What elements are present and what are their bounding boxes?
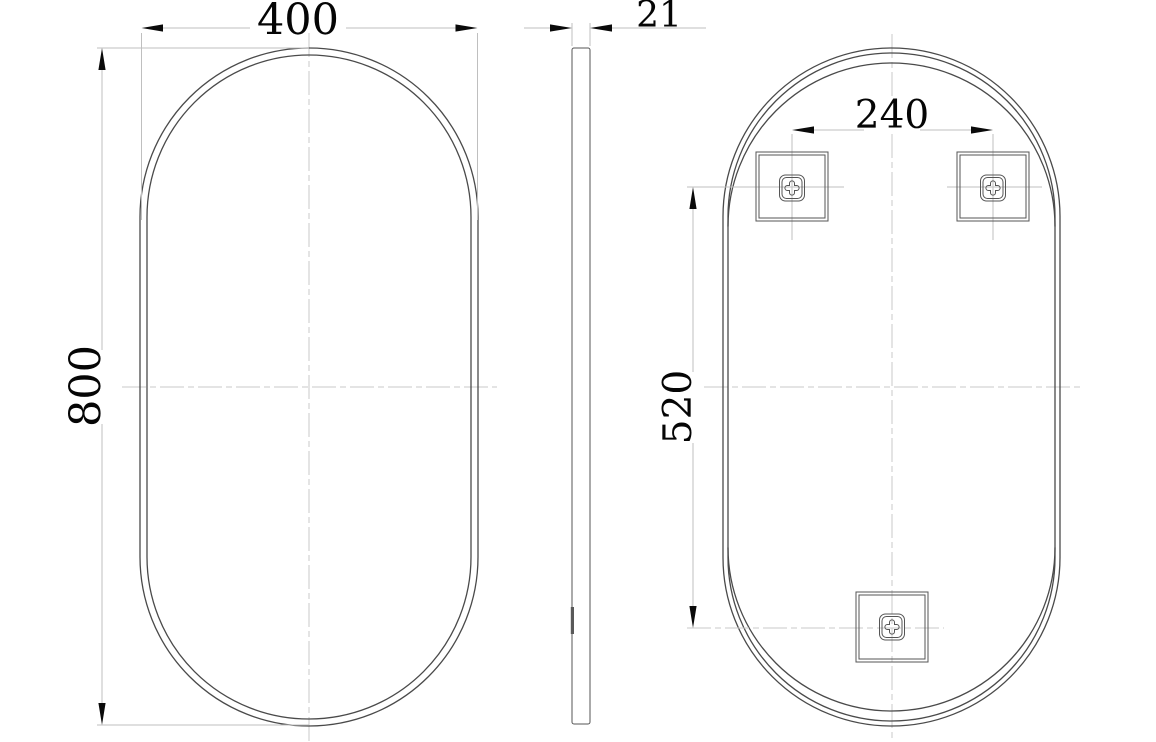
back-bracket-spacing-dimension: 240 <box>792 93 993 138</box>
arrowhead-right-icon <box>456 24 478 31</box>
front-view <box>122 33 497 741</box>
side-thickness-dimension: 21 <box>524 0 706 46</box>
arrowhead-left-icon <box>792 126 814 133</box>
arrowhead-right-icon <box>971 126 993 133</box>
arrowhead-down-icon <box>98 703 105 725</box>
drawing-canvas: 400 800 21 <box>0 0 1156 742</box>
arrowhead-left-icon <box>590 24 612 31</box>
bracket-vertical-label: 520 <box>656 370 701 444</box>
front-width-label: 400 <box>257 0 339 45</box>
arrowhead-down-icon <box>689 606 696 628</box>
back-view <box>687 34 1081 741</box>
side-profile-outline <box>572 48 590 724</box>
back-bracket-vertical-dimension: 520 <box>656 187 701 628</box>
arrowhead-up-icon <box>689 187 696 209</box>
side-thickness-label: 21 <box>636 0 682 36</box>
side-view <box>571 48 590 724</box>
front-height-label: 800 <box>61 345 111 427</box>
side-clip-detail <box>571 607 574 634</box>
arrowhead-up-icon <box>98 48 105 70</box>
arrowhead-right-icon <box>550 24 572 31</box>
bracket-spacing-label: 240 <box>855 93 929 138</box>
arrowhead-left-icon <box>142 24 164 31</box>
front-height-dimension: 800 <box>61 48 309 725</box>
technical-drawing: 400 800 21 <box>0 0 1156 742</box>
